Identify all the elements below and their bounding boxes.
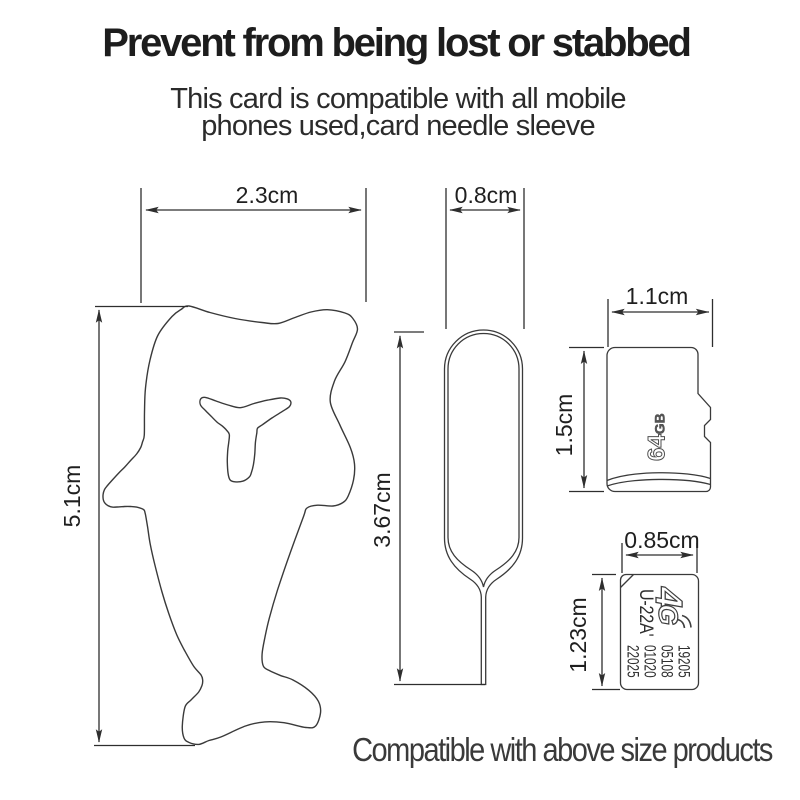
svg-text:0.8cm: 0.8cm [455, 182, 518, 208]
svg-text:phones used,card needle sleeve: phones used,card needle sleeve [201, 110, 595, 142]
svg-text:Prevent from being lost or sta: Prevent from being lost or stabbed [102, 21, 690, 65]
svg-text:U-22A': U-22A' [636, 589, 658, 636]
svg-text:1.23cm: 1.23cm [565, 597, 591, 672]
svg-text:2.3cm: 2.3cm [236, 182, 299, 208]
svg-text:3.67cm: 3.67cm [369, 472, 395, 547]
svg-text:0.85cm: 0.85cm [624, 527, 699, 553]
svg-text:Compatible with above size pro: Compatible with above size products [352, 731, 773, 768]
svg-text:1.5cm: 1.5cm [551, 394, 577, 457]
svg-text:1.1cm: 1.1cm [626, 283, 689, 309]
svg-text:5.1cm: 5.1cm [59, 465, 85, 528]
svg-text:19205051080102022025: 19205051080102022025 [623, 645, 693, 678]
